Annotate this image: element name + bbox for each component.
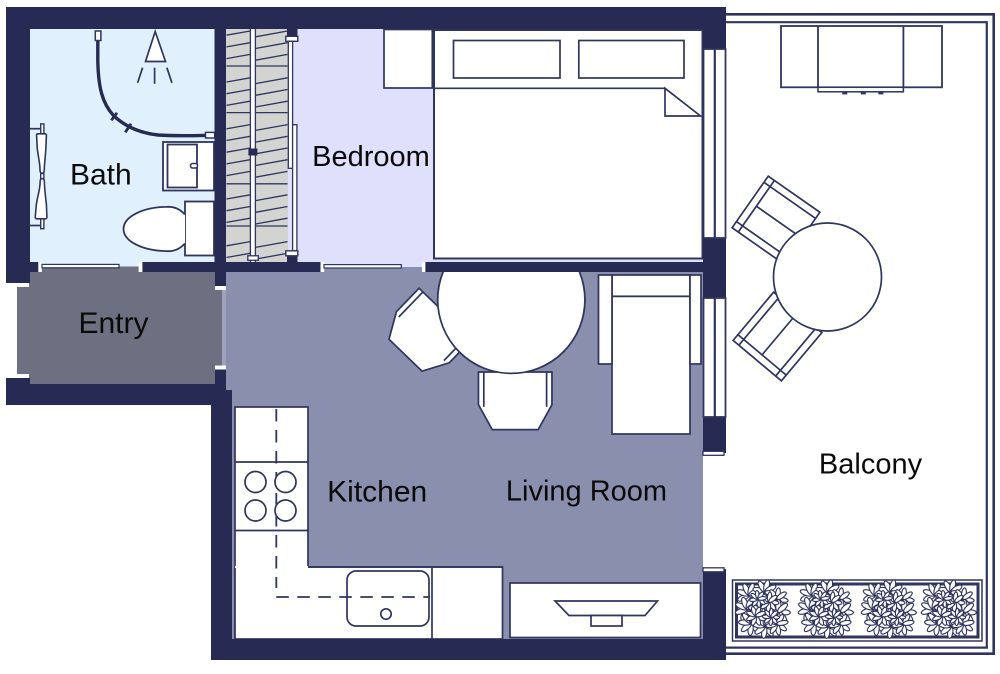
svg-text:Balcony: Balcony	[819, 449, 923, 481]
svg-text:Living Room: Living Room	[506, 476, 667, 508]
svg-text:Bedroom: Bedroom	[312, 141, 430, 173]
svg-text:Kitchen: Kitchen	[327, 475, 427, 508]
svg-text:Entry: Entry	[78, 307, 148, 340]
svg-text:Bath: Bath	[70, 158, 132, 191]
